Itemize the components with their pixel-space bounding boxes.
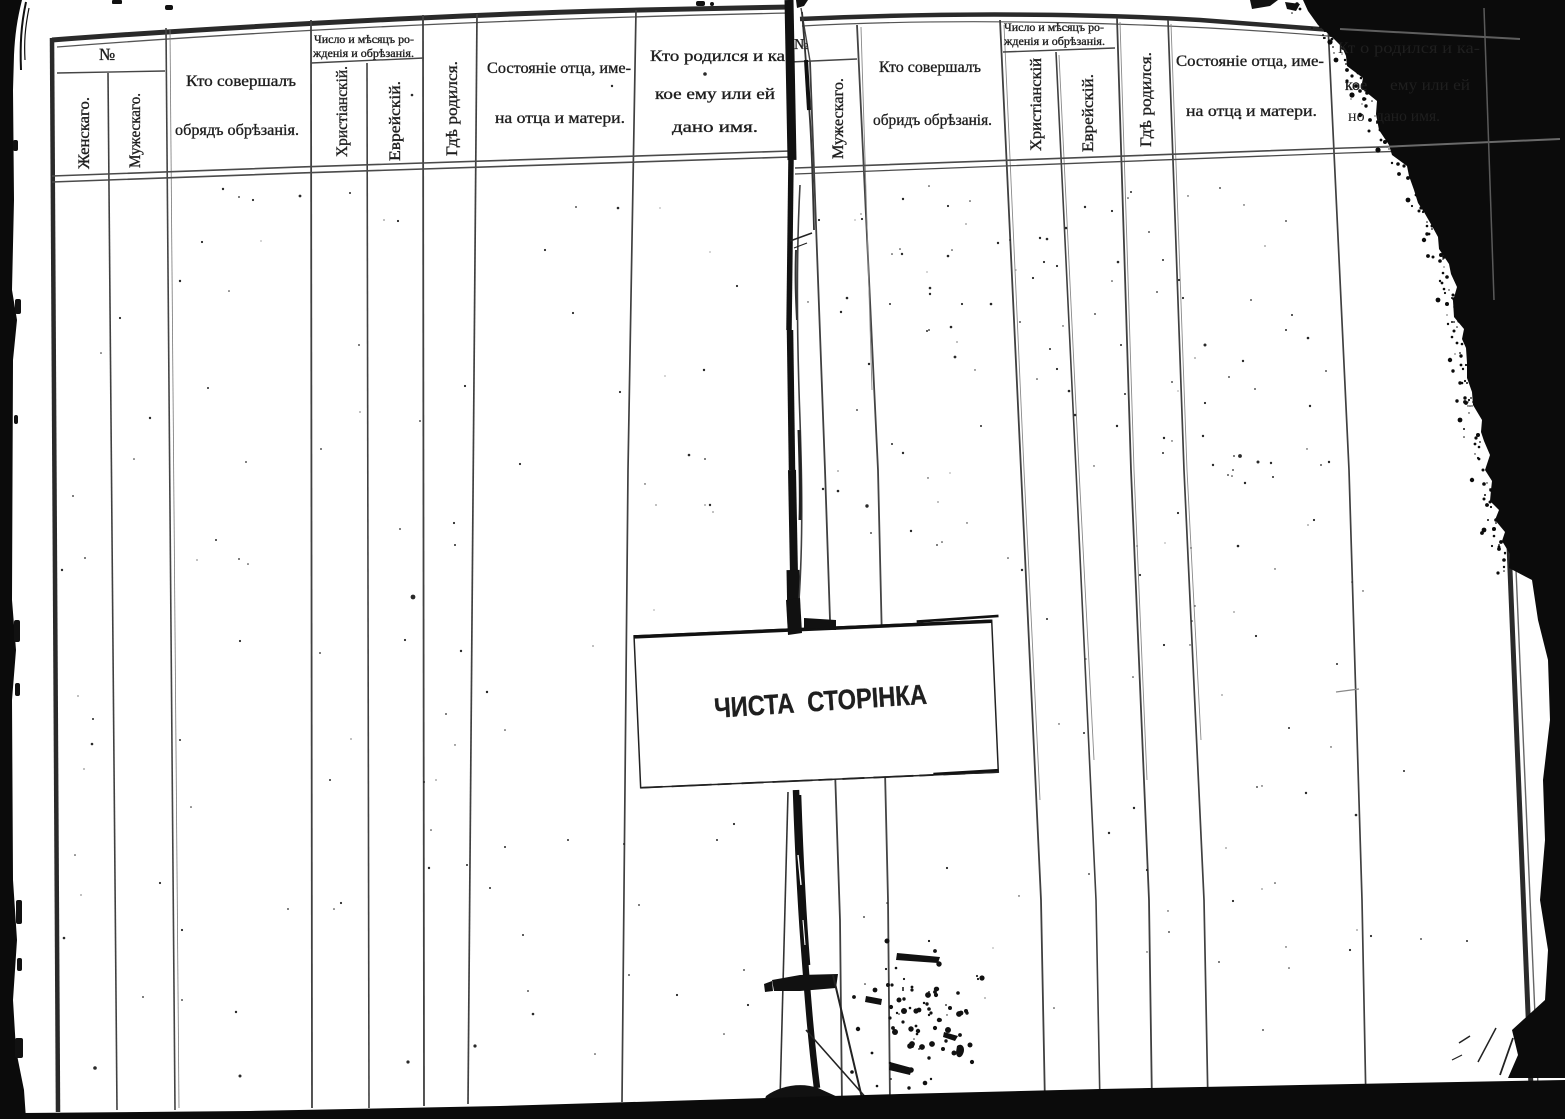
svg-text:Еврейскій.: Еврейскій. [387,81,404,161]
svg-text:Кто родился и ка: Кто родился и ка [650,48,785,65]
svg-text:на отца и матери.: на отца и матери. [495,110,625,127]
svg-text:Женскаго.: Женскаго. [76,97,93,169]
svg-text:Число и мѣсяцъ ро-: Число и мѣсяцъ ро- [1004,22,1104,34]
svg-text:Кто совершалъ: Кто совершалъ [186,73,296,90]
svg-text:о родился и ка-: о родился и ка- [1360,40,1480,57]
svg-text:дано имя.: дано имя. [1376,108,1440,125]
svg-text:Гдѣ родился.: Гдѣ родился. [1138,52,1155,147]
svg-text:Состояніе отца, име-: Состояніе отца, име- [1176,53,1324,70]
svg-text:дано имя.: дано имя. [672,119,758,136]
svg-text:Состояніе отца, име-: Состояніе отца, име- [487,60,631,77]
svg-text:но: но [1348,108,1365,125]
svg-text:Мужескаго.: Мужескаго. [127,93,144,168]
svg-text:обрядъ обрѣзанія.: обрядъ обрѣзанія. [175,122,299,139]
svg-text:Христіанскій.: Христіанскій. [334,66,351,157]
svg-text:Мужескаго.: Мужескаго. [830,78,847,159]
svg-text:жденія и обрѣзанія.: жденія и обрѣзанія. [312,48,414,60]
svg-text:Кто совершалъ: Кто совершалъ [879,59,981,76]
svg-text:кое: кое [1345,77,1367,94]
svg-text:№: № [99,45,116,64]
svg-text:Кт: Кт [1338,40,1355,57]
svg-text:жденія и обрѣзанія.: жденія и обрѣзанія. [1003,36,1105,48]
svg-text:№: № [794,37,808,53]
svg-text:Еврейскій.: Еврейскій. [1080,74,1097,152]
svg-text:Христіанскій: Христіанскій [1028,58,1045,151]
svg-text:обридъ обрѣзанія.: обридъ обрѣзанія. [873,112,992,129]
svg-text:кое ему или ей: кое ему или ей [655,86,776,103]
svg-text:Число и мѣсяцъ ро-: Число и мѣсяцъ ро- [314,34,414,46]
svg-text:на отца и матери.: на отца и матери. [1186,103,1317,120]
svg-text:ему или ей: ему или ей [1390,77,1470,94]
svg-text:Гдѣ родился.: Гдѣ родился. [444,61,461,156]
